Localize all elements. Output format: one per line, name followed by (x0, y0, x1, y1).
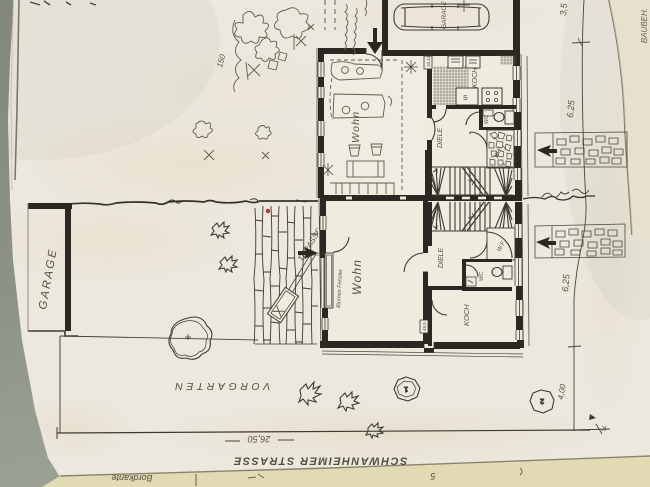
svg-text:Wohn: Wohn (350, 259, 364, 295)
svg-text:SCHWANHEIMER STRASSE: SCHWANHEIMER STRASSE (233, 455, 408, 467)
svg-text:WC: WC (484, 115, 490, 124)
svg-text:KOCH: KOCH (472, 67, 479, 88)
svg-text:1: 1 (404, 385, 408, 392)
svg-text:Wohn: Wohn (350, 111, 362, 143)
svg-text:S: S (463, 95, 468, 102)
svg-text:BAUBEH.: BAUBEH. (640, 8, 649, 43)
svg-text:GARAGE: GARAGE (441, 1, 448, 29)
svg-text:6,25: 6,25 (560, 273, 572, 292)
svg-text:Bordkante: Bordkante (111, 473, 152, 483)
svg-text:3,5: 3,5 (558, 2, 569, 16)
svg-text:10,12: 10,12 (426, 55, 431, 67)
svg-text:45,5: 45,5 (422, 322, 427, 331)
svg-text:6.25: 6.25 (565, 99, 577, 118)
svg-text:VORGARTEN: VORGARTEN (172, 380, 271, 392)
svg-text:DIELE: DIELE (438, 247, 445, 268)
svg-text:DIELE: DIELE (437, 127, 444, 148)
svg-text:2: 2 (540, 397, 544, 404)
svg-text:K: K (601, 424, 606, 431)
svg-text:KOCH: KOCH (462, 304, 471, 326)
svg-text:WC: WC (479, 272, 485, 281)
svg-text:26,50: 26,50 (248, 434, 272, 444)
